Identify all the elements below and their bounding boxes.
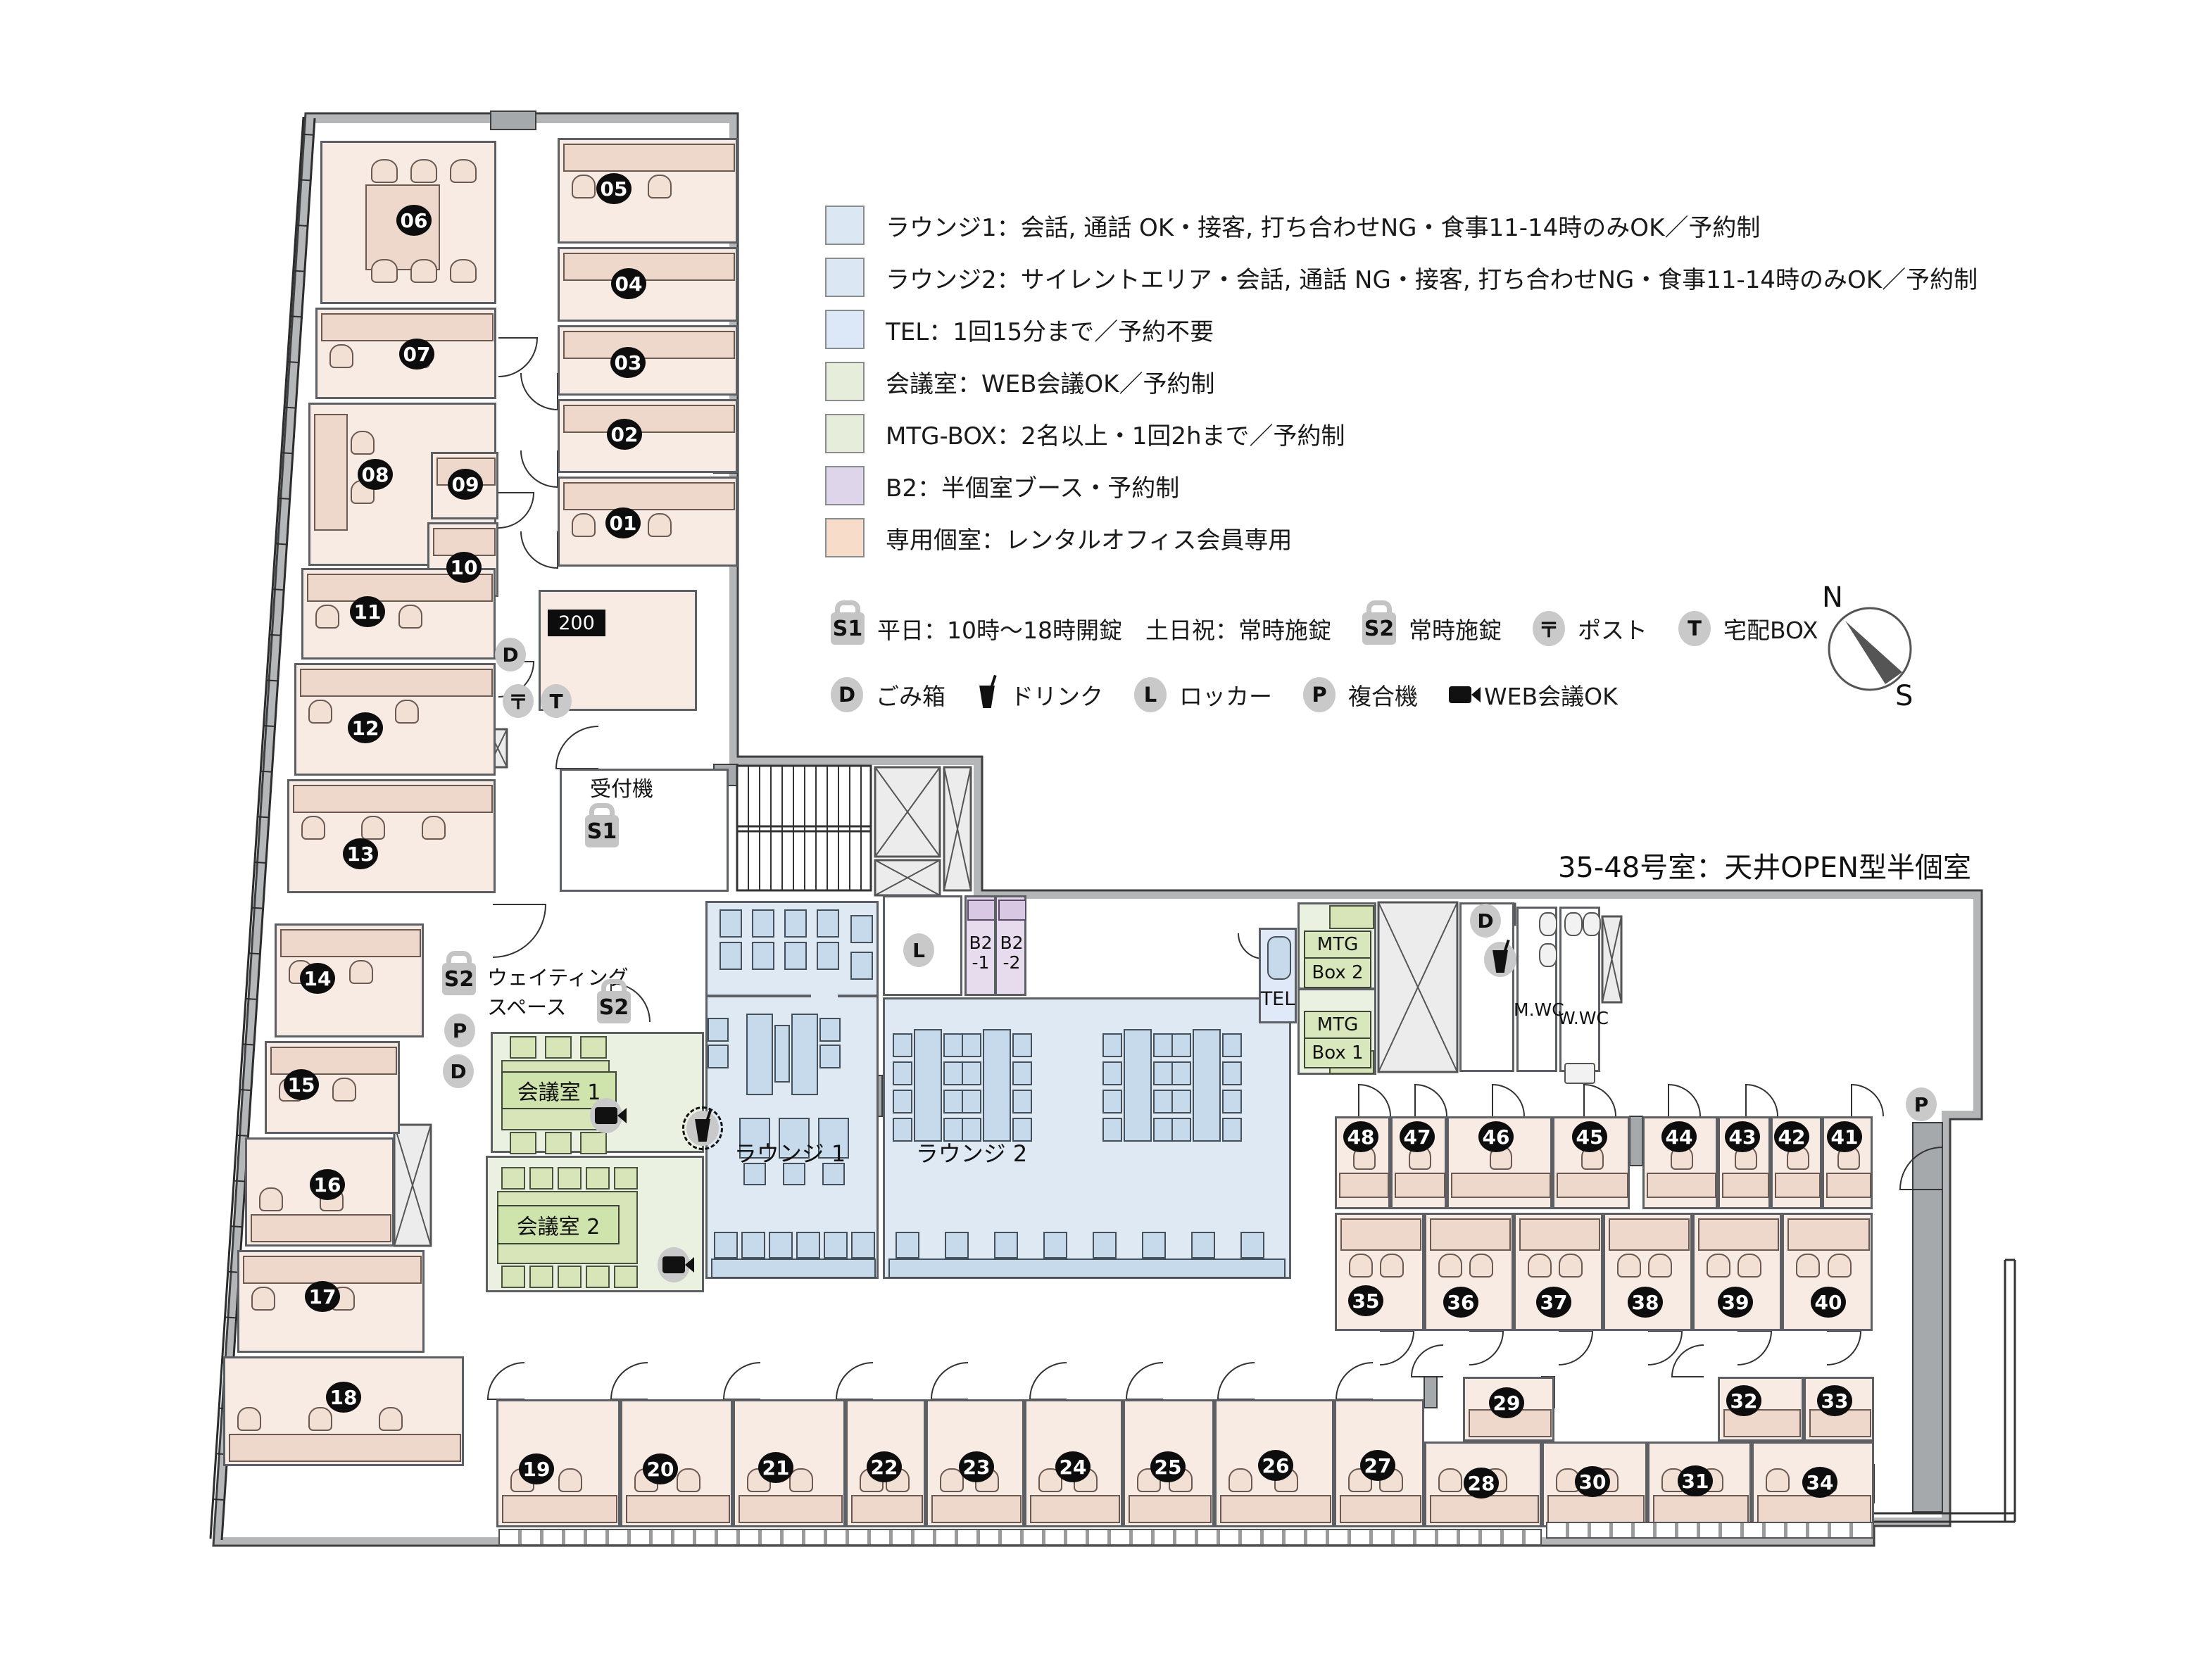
- office-chair: [308, 700, 332, 724]
- s2-lock-icon: S2: [597, 991, 631, 1023]
- lounge-chair: [943, 1090, 963, 1114]
- room-number-badge: 30: [1575, 1466, 1610, 1497]
- room-number-badge: 15: [284, 1069, 319, 1100]
- circle-icon: D: [831, 677, 863, 712]
- office-chair: [422, 816, 446, 840]
- window-tick: [272, 589, 284, 590]
- b2-2-label-line1: B2: [1000, 933, 1023, 953]
- room-number-badge: 41: [1827, 1121, 1862, 1152]
- circle-icon: 〒: [1533, 611, 1565, 646]
- room-number-badge: 42: [1774, 1121, 1809, 1152]
- wall-pillar: [1424, 1377, 1437, 1408]
- legend-swatch: [825, 414, 865, 453]
- desk: [563, 331, 735, 359]
- room-number-badge: 01: [605, 507, 641, 538]
- counter-chair: [896, 1232, 919, 1259]
- compass-south-label: S: [1895, 680, 1913, 712]
- b2-2-label: B2 -2: [997, 933, 1026, 972]
- room-number-badge: 46: [1478, 1121, 1514, 1152]
- mwc-label: M.WC: [1514, 999, 1557, 1020]
- room-number-badge: 22: [867, 1451, 902, 1482]
- icon-legend-item: P複合機: [1303, 677, 1418, 712]
- window-strip: [1546, 1522, 1874, 1539]
- circle-icon: T: [1678, 611, 1711, 646]
- room-number-badge: 39: [1718, 1287, 1753, 1318]
- lounge-counter: [888, 1259, 1286, 1278]
- mtg-table: [1329, 905, 1374, 929]
- lounge1-divider: [705, 995, 811, 997]
- floor-plan-page: ラウンジ1：会話, 通話 OK・接客, 打ち合わせNG・食事11-14時のみOK…: [0, 0, 2212, 1659]
- office-chair: [361, 816, 385, 840]
- room-number-badge: 40: [1811, 1287, 1846, 1318]
- wall-pillar: [1630, 1116, 1642, 1166]
- room-number-badge: 31: [1678, 1465, 1713, 1496]
- icon-legend-row-2: Dごみ箱ドリンクLロッカーP複合機WEB会議OK: [831, 677, 1649, 712]
- lounge-chair: [752, 942, 774, 970]
- office-chair: [379, 1407, 403, 1431]
- lounge1-label: ラウンジ 1: [727, 1136, 853, 1168]
- b2-2-label-line2: -2: [1003, 952, 1021, 973]
- lounge-chair: [817, 909, 839, 938]
- window-tick: [240, 1090, 251, 1090]
- room-number-badge: 12: [348, 712, 383, 743]
- icon-legend-label: 宅配BOX: [1723, 612, 1818, 645]
- room-number-badge: 06: [396, 205, 432, 236]
- lounge-chair: [943, 1061, 963, 1085]
- window-tick: [234, 1180, 245, 1181]
- window-tick: [296, 225, 308, 226]
- room-number-badge: 33: [1817, 1385, 1852, 1416]
- desk: [1339, 1173, 1389, 1198]
- office-chair: [1349, 1254, 1373, 1278]
- room-number-badge: 04: [611, 268, 646, 299]
- meeting-chair: [586, 1266, 610, 1288]
- lounge-chair: [719, 942, 742, 970]
- desk: [1430, 1218, 1511, 1251]
- waiting-space-label-line2: スペース: [487, 991, 567, 1021]
- lounge-chair: [784, 942, 807, 970]
- office-chair: [572, 175, 596, 198]
- room-type-legend: ラウンジ1：会話, 通話 OK・接客, 打ち合わせNG・食事11-14時のみOK…: [825, 206, 2092, 570]
- lounge-chair: [850, 952, 873, 980]
- desk: [1653, 1495, 1749, 1523]
- window-tick: [294, 271, 305, 272]
- icon-legend-item: S2常時施錠: [1362, 612, 1502, 645]
- office-chair: [332, 1078, 356, 1102]
- office-chair: [1228, 1468, 1252, 1492]
- icon-legend-label: WEB会議OK: [1484, 678, 1618, 712]
- window-tick: [237, 1135, 248, 1136]
- desk: [931, 1495, 1022, 1523]
- lounge-chair: [1153, 1118, 1173, 1142]
- window-tick: [275, 544, 287, 545]
- locker-icon: L: [903, 933, 934, 967]
- legend-swatch: [825, 206, 865, 245]
- legend-label: 専用個室：レンタルオフィス会員専用: [886, 521, 1292, 555]
- lounge-chair: [1102, 1118, 1122, 1142]
- lounge-chair: [1153, 1061, 1173, 1085]
- lounge-chair: [1102, 1061, 1122, 1085]
- window-strip: [498, 1529, 1542, 1546]
- icon-legend-item: ドリンク: [976, 678, 1103, 712]
- office-chair: [251, 1287, 275, 1311]
- icon-legend-row-1: S1平日：10時〜18時開錠 土日祝：常時施錠S2常時施錠〒ポストT宅配BOX: [831, 611, 1849, 646]
- desk: [1340, 1218, 1421, 1251]
- desk: [1775, 1173, 1821, 1198]
- room-number-badge: 13: [343, 838, 378, 869]
- s1-lock-icon: S1: [585, 815, 619, 847]
- drink-icon: [1484, 942, 1516, 977]
- toilet: [1583, 912, 1601, 936]
- desk: [1787, 1218, 1870, 1251]
- room-number-badge: 47: [1400, 1121, 1435, 1152]
- window-tick: [231, 1226, 242, 1227]
- office-chair: [349, 960, 373, 984]
- office-chair: [1828, 1254, 1852, 1278]
- icon-legend-item: S1平日：10時〜18時開錠 土日祝：常時施錠: [831, 612, 1331, 645]
- window-tick: [264, 726, 275, 726]
- meeting-chair: [545, 1132, 572, 1154]
- drink-icon: [686, 1111, 719, 1146]
- counter-chair: [714, 1232, 738, 1259]
- lock-icon: S2: [1362, 612, 1396, 645]
- desk: [563, 144, 735, 172]
- room-number-badge: 21: [758, 1452, 793, 1483]
- room-number-badge: 05: [596, 173, 631, 204]
- lounge-chair: [893, 1033, 912, 1057]
- lounge-chair: [962, 1061, 981, 1085]
- office-chair: [315, 605, 339, 629]
- office-chair: [450, 159, 477, 183]
- legend-item: TEL：1回15分まで／予約不要: [825, 310, 2092, 349]
- circle-icon: P: [1303, 677, 1336, 712]
- lounge-chair: [1222, 1118, 1242, 1142]
- legend-item: 専用個室：レンタルオフィス会員専用: [825, 518, 2092, 557]
- office-chair: [371, 259, 398, 283]
- lounge-chair: [943, 1033, 963, 1057]
- window-tick: [260, 771, 272, 772]
- meeting-room-2-label: 会議室 2: [497, 1205, 620, 1244]
- room-number-badge: 08: [358, 459, 393, 490]
- lounge-sofa: [791, 1014, 818, 1095]
- legend-swatch: [825, 310, 865, 349]
- lounge-chair: [784, 909, 807, 938]
- meeting-chair: [586, 1167, 610, 1190]
- desk: [1609, 1218, 1690, 1251]
- trash-icon: D: [495, 638, 526, 671]
- legend-item: 会議室：WEB会議OK／予約制: [825, 362, 2092, 401]
- wall-pillar: [1913, 1123, 1942, 1512]
- room-number-badge: 19: [519, 1453, 554, 1484]
- room-number-badge: 45: [1572, 1121, 1607, 1152]
- desk: [321, 313, 494, 341]
- lounge-chair: [1102, 1033, 1122, 1057]
- room-number-badge: 11: [350, 596, 385, 627]
- room-number-badge: 37: [1536, 1287, 1571, 1318]
- meeting-chair: [558, 1266, 582, 1288]
- desk: [300, 669, 493, 697]
- s2-lock-icon: S2: [442, 963, 476, 995]
- lounge-chair: [1171, 1033, 1191, 1057]
- office-chair: [1438, 1468, 1462, 1492]
- printer-icon: P: [444, 1014, 475, 1047]
- delivery-box-icon: T: [541, 684, 572, 718]
- legend-label: ラウンジ2：サイレントエリア・会話, 通話 NG・接客, 打ち合わせNG・食事1…: [886, 260, 1978, 295]
- legend-label: 会議室：WEB会議OK／予約制: [886, 365, 1214, 399]
- counter-chair: [1093, 1232, 1117, 1259]
- wall-pillar: [491, 111, 536, 130]
- office-chair: [1469, 1254, 1493, 1278]
- counter-chair: [851, 1232, 875, 1259]
- office-chair: [450, 259, 477, 283]
- desk: [1430, 1495, 1539, 1523]
- desk: [280, 929, 421, 957]
- window-tick: [270, 635, 281, 636]
- b2-desk: [967, 900, 995, 921]
- b2-desk: [998, 900, 1026, 921]
- office-chair: [1438, 1254, 1462, 1278]
- legend-swatch: [825, 362, 865, 401]
- office-chair: [259, 1187, 283, 1211]
- meeting-chair: [501, 1167, 525, 1190]
- desk: [314, 414, 348, 531]
- office-chair: [1737, 1254, 1761, 1278]
- room-number-badge: 02: [607, 419, 642, 450]
- legend-item: ラウンジ1：会話, 通話 OK・接客, 打ち合わせNG・食事11-14時のみOK…: [825, 206, 2092, 245]
- room-number-badge: 24: [1055, 1451, 1091, 1482]
- counter-chair: [796, 1232, 820, 1259]
- room-number-badge: 28: [1464, 1468, 1499, 1499]
- lounge-chair: [1171, 1061, 1191, 1085]
- meeting-chair: [529, 1167, 553, 1190]
- lounge-sofa: [746, 1014, 773, 1095]
- meeting-chair: [558, 1167, 582, 1190]
- room-number-badge: 36: [1443, 1287, 1478, 1318]
- office-chair: [558, 1468, 582, 1492]
- circle-icon: L: [1134, 677, 1167, 712]
- room-200-label: 200: [548, 610, 605, 636]
- post-icon: 〒: [503, 684, 534, 718]
- room-number-badge: 44: [1661, 1121, 1697, 1152]
- room-number-badge: 48: [1343, 1121, 1378, 1152]
- legend-item: MTG-BOX：2名以上・1回2hまで／予約制: [825, 414, 2092, 453]
- desk: [1647, 1173, 1716, 1198]
- legend-label: ラウンジ1：会話, 通話 OK・接客, 打ち合わせNG・食事11-14時のみOK…: [886, 208, 1760, 243]
- window-tick: [252, 908, 263, 909]
- legend-label: MTG-BOX：2名以上・1回2hまで／予約制: [886, 417, 1345, 451]
- legend-item: B2：半個室ブース・予約制: [825, 466, 2092, 505]
- lounge-chair: [719, 909, 742, 938]
- room-number-badge: 14: [300, 963, 335, 994]
- desk: [563, 405, 735, 433]
- room-number-badge: 27: [1360, 1450, 1395, 1481]
- desk: [739, 1495, 843, 1523]
- lounge-chair: [893, 1090, 912, 1114]
- counter-chair: [741, 1232, 765, 1259]
- room-number-badge: 07: [399, 339, 434, 370]
- office-chair: [410, 259, 437, 283]
- legend-swatch: [825, 466, 865, 505]
- lounge-counter: [711, 1259, 876, 1278]
- room-number-badge: 38: [1628, 1287, 1663, 1318]
- desk: [1698, 1218, 1779, 1251]
- desk: [1757, 1495, 1871, 1523]
- web-camera-icon: [590, 1098, 622, 1133]
- mtg-box1-label-bottom: Box 1: [1304, 1037, 1371, 1068]
- window-tick: [302, 134, 313, 135]
- window-tick: [287, 362, 299, 362]
- window-tick: [284, 408, 296, 408]
- desk: [251, 1214, 391, 1242]
- icon-legend-label: ポスト: [1578, 612, 1647, 645]
- trash-icon: D: [443, 1054, 474, 1088]
- window-tick: [246, 999, 257, 999]
- lounge-chair: [893, 1061, 912, 1085]
- desk: [1547, 1495, 1645, 1523]
- window-tick: [291, 316, 302, 317]
- desk: [1722, 1173, 1769, 1198]
- office-chair: [648, 175, 672, 198]
- desk: [1220, 1495, 1331, 1523]
- icon-legend-item: Dごみ箱: [831, 677, 945, 712]
- office-chair: [398, 605, 422, 629]
- lounge2-label: ラウンジ 2: [908, 1136, 1035, 1168]
- tel-chair: [1267, 936, 1291, 980]
- lounge-chair: [819, 1045, 841, 1068]
- desk: [1557, 1173, 1628, 1198]
- office-chair: [371, 159, 398, 183]
- room-number-badge: 25: [1150, 1451, 1186, 1482]
- desk: [1030, 1495, 1120, 1523]
- lounge-chair: [752, 909, 774, 938]
- office-chair: [1617, 1254, 1641, 1278]
- office-chair: [1528, 1254, 1552, 1278]
- office-chair: [648, 513, 672, 537]
- desk: [1340, 1495, 1421, 1523]
- icon-legend-label: ごみ箱: [876, 678, 945, 712]
- tel-label: TEL: [1259, 988, 1297, 1010]
- window-tick: [249, 953, 260, 954]
- counter-chair: [1191, 1232, 1215, 1259]
- room-number-badge: 26: [1258, 1450, 1293, 1481]
- desk: [563, 482, 735, 510]
- room-number-badge: 17: [305, 1281, 340, 1312]
- icon-legend-item: 〒ポスト: [1533, 611, 1647, 646]
- reception-label: 受付機: [590, 771, 653, 802]
- area-note: 35-48号室：天井OPEN型半個室: [1549, 845, 1971, 885]
- office-chair: [1766, 1468, 1790, 1492]
- room-number-badge: 43: [1725, 1121, 1760, 1152]
- lounge-chair: [1012, 1033, 1032, 1057]
- icon-legend-label: ロッカー: [1179, 678, 1272, 712]
- printer-icon: P: [1906, 1087, 1937, 1121]
- counter-chair: [769, 1232, 793, 1259]
- desk: [502, 1495, 617, 1523]
- lounge-chair: [1222, 1090, 1242, 1114]
- desk: [626, 1495, 730, 1523]
- desk: [243, 1256, 422, 1284]
- lounge-long-table: [1124, 1029, 1152, 1142]
- meeting-chair: [614, 1266, 638, 1288]
- counter-chair: [1142, 1232, 1166, 1259]
- office-chair: [677, 1468, 700, 1492]
- lounge-chair: [1222, 1033, 1242, 1057]
- meeting-chair: [501, 1266, 525, 1288]
- office-chair: [1796, 1254, 1820, 1278]
- meeting-chair: [510, 1036, 536, 1059]
- desk: [1826, 1173, 1871, 1198]
- lounge-table: [774, 1025, 790, 1083]
- desk: [293, 785, 493, 813]
- counter-chair: [945, 1232, 969, 1259]
- icon-legend-label: 複合機: [1348, 678, 1418, 712]
- window-tick: [282, 453, 293, 453]
- mtg-box2-label-bottom: Box 2: [1304, 957, 1371, 988]
- office-chair: [789, 1468, 813, 1492]
- desk: [1129, 1495, 1212, 1523]
- icon-legend-item: Lロッカー: [1134, 677, 1272, 712]
- lounge-chair: [1171, 1090, 1191, 1114]
- lounge-chair: [962, 1090, 981, 1114]
- lounge-chair: [1153, 1090, 1173, 1114]
- lounge-chair: [1222, 1061, 1242, 1085]
- desk: [229, 1434, 461, 1462]
- room-number-badge: 29: [1489, 1387, 1524, 1418]
- window-tick: [225, 1317, 237, 1318]
- meeting-chair: [614, 1167, 638, 1190]
- office-chair: [1380, 1254, 1404, 1278]
- meeting-chair: [580, 1036, 607, 1059]
- office-chair: [572, 513, 596, 537]
- icon-legend-label: 常時施錠: [1409, 612, 1502, 645]
- office-chair: [410, 159, 437, 183]
- lounge-chair: [708, 1018, 729, 1042]
- drink-icon: [976, 681, 998, 708]
- lounge-chair: [1012, 1090, 1032, 1114]
- desk: [1451, 1173, 1551, 1198]
- desk: [270, 1047, 397, 1075]
- office-chair: [329, 344, 353, 368]
- window-tick: [213, 1499, 225, 1500]
- room-number-badge: 10: [446, 552, 482, 583]
- toilet: [1539, 943, 1557, 967]
- counter-chair: [824, 1232, 848, 1259]
- office-chair: [351, 431, 375, 455]
- legend-item: ラウンジ2：サイレントエリア・会話, 通話 NG・接客, 打ち合わせNG・食事1…: [825, 258, 2092, 297]
- lounge1-divider: [838, 995, 879, 997]
- toilet: [1564, 912, 1583, 936]
- lounge-chair: [1012, 1061, 1032, 1085]
- desk: [851, 1495, 923, 1523]
- legend-swatch: [825, 518, 865, 557]
- lounge-chair: [962, 1033, 981, 1057]
- office-chair: [301, 816, 325, 840]
- office-chair: [237, 1407, 261, 1431]
- window-tick: [255, 862, 266, 863]
- legend-swatch: [825, 258, 865, 297]
- window-tick: [267, 680, 278, 681]
- office-chair: [1559, 1254, 1583, 1278]
- counter-chair: [1043, 1232, 1067, 1259]
- room-number-badge: 18: [326, 1382, 361, 1413]
- counter-chair: [1240, 1232, 1264, 1259]
- icon-legend-label: ドリンク: [1010, 678, 1103, 712]
- icon-legend-item: T宅配BOX: [1678, 611, 1818, 646]
- lounge-chair: [1171, 1118, 1191, 1142]
- lounge-chair: [708, 1045, 729, 1068]
- room-number-badge: 23: [959, 1451, 994, 1482]
- lounge-chair: [850, 915, 873, 943]
